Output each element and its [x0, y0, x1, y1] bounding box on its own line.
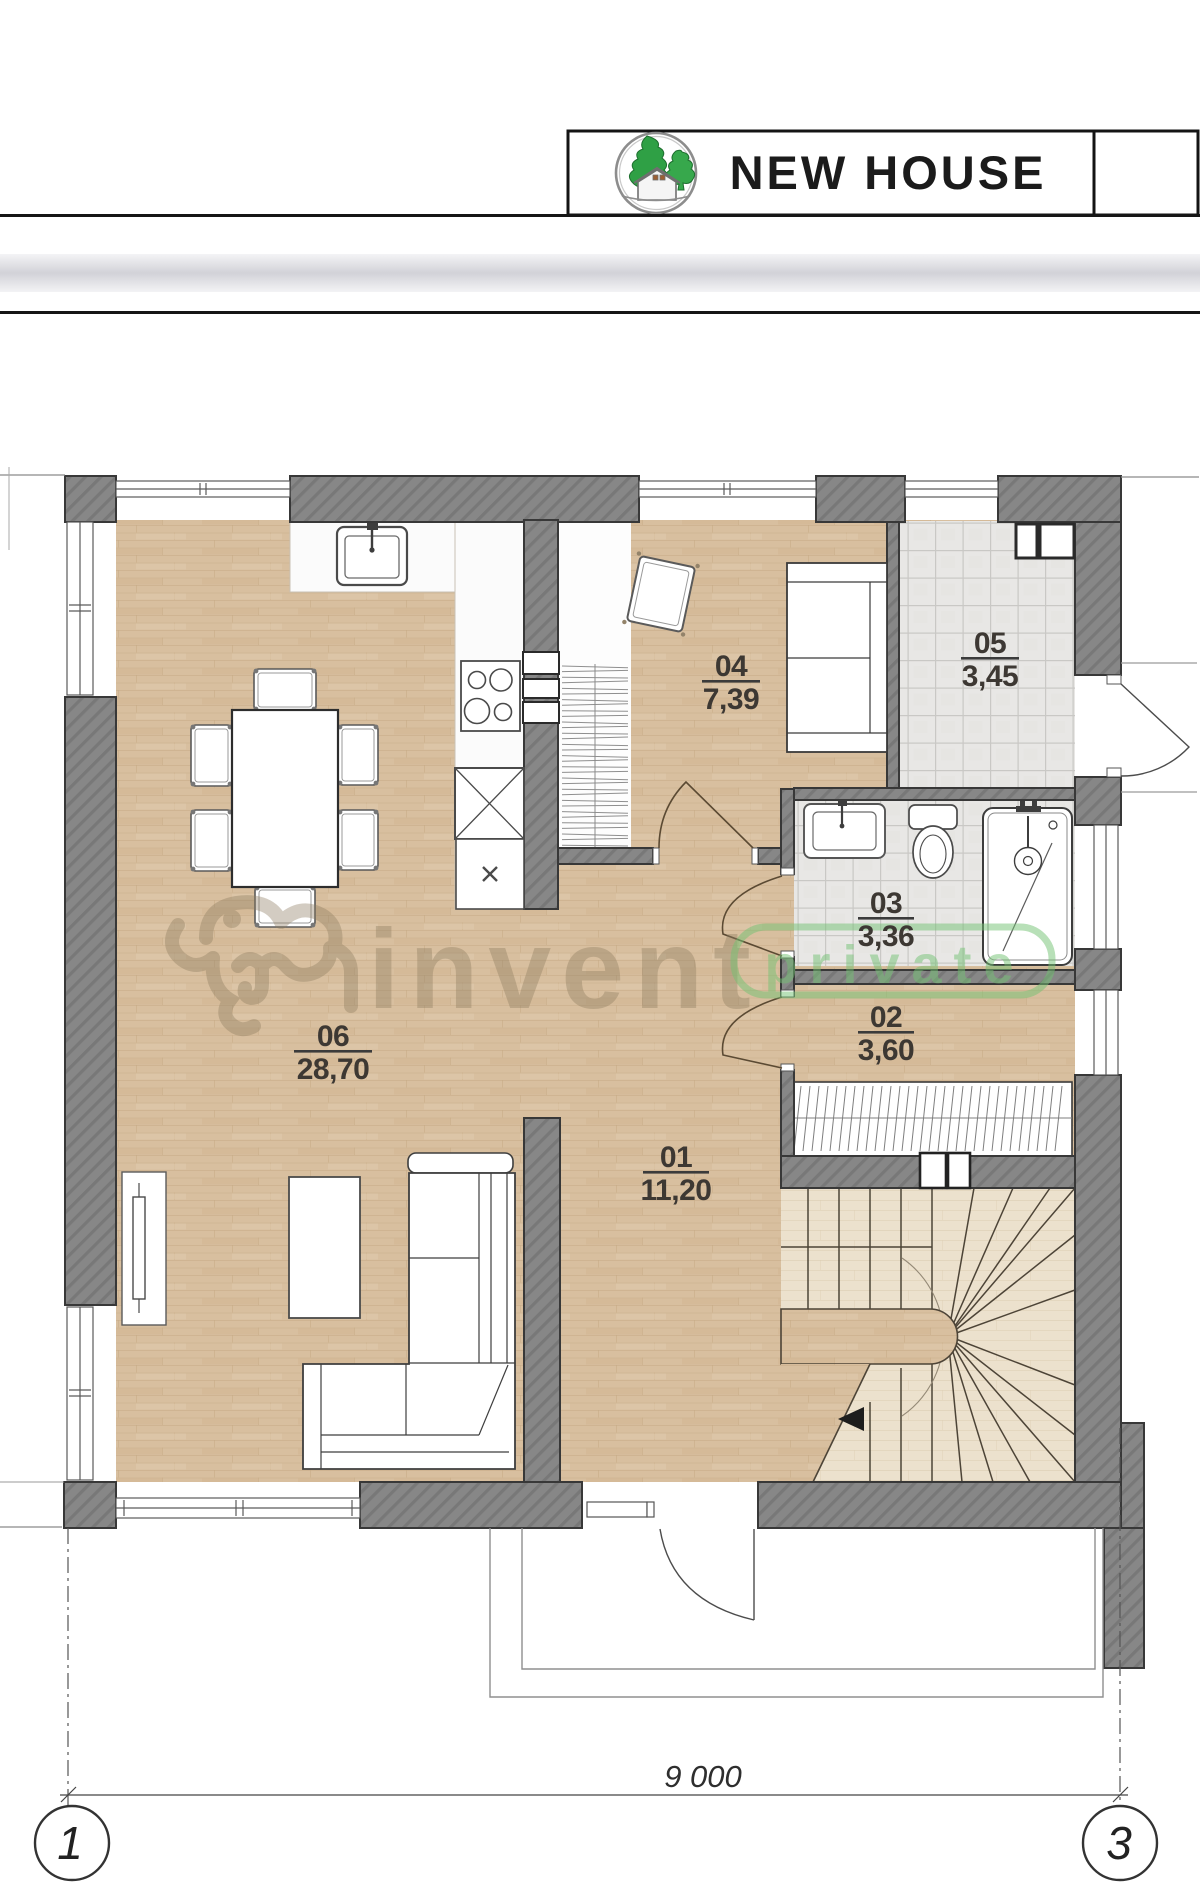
- svg-text:3,36: 3,36: [858, 920, 914, 953]
- svg-text:1: 1: [57, 1817, 83, 1869]
- svg-text:02: 02: [870, 1001, 902, 1034]
- svg-text:invent: invent: [368, 906, 761, 1032]
- svg-text:3,60: 3,60: [858, 1034, 914, 1067]
- svg-text:NEW HOUSE: NEW HOUSE: [730, 146, 1047, 199]
- svg-text:3: 3: [1106, 1817, 1132, 1869]
- svg-text:04: 04: [715, 650, 748, 683]
- svg-text:11,20: 11,20: [641, 1174, 712, 1207]
- svg-text:01: 01: [660, 1141, 692, 1174]
- svg-text:7,39: 7,39: [703, 683, 759, 716]
- svg-text:06: 06: [317, 1020, 349, 1053]
- svg-text:3,45: 3,45: [962, 660, 1018, 693]
- svg-text:03: 03: [870, 887, 902, 920]
- svg-text:28,70: 28,70: [297, 1053, 370, 1086]
- svg-text:05: 05: [974, 627, 1006, 660]
- svg-text:9 000: 9 000: [664, 1759, 742, 1794]
